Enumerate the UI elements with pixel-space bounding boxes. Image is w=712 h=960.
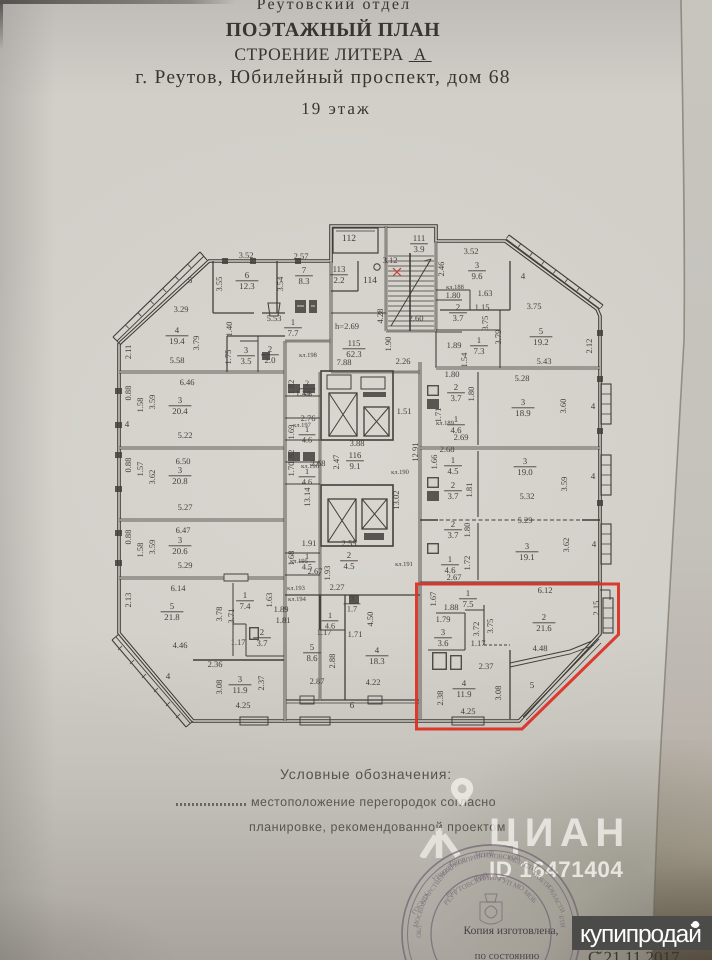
svg-text:3.78: 3.78	[214, 607, 224, 622]
svg-text:1.68: 1.68	[286, 551, 296, 566]
svg-text:1.80: 1.80	[462, 523, 472, 538]
svg-text:1: 1	[305, 467, 309, 476]
svg-text:h=2.69: h=2.69	[335, 321, 359, 331]
svg-text:5.29: 5.29	[518, 515, 533, 525]
svg-text:2: 2	[454, 382, 458, 392]
svg-text:3: 3	[178, 535, 183, 545]
svg-text:3.7: 3.7	[448, 530, 460, 540]
svg-text:3.7: 3.7	[448, 491, 460, 501]
svg-text:8.6: 8.6	[307, 653, 319, 663]
svg-text:1.57: 1.57	[135, 462, 145, 477]
svg-text:3.79: 3.79	[191, 336, 201, 351]
svg-text:2.15: 2.15	[591, 601, 601, 616]
svg-text:20.8: 20.8	[172, 476, 188, 486]
svg-text:1: 1	[451, 455, 455, 465]
svg-text:3.59: 3.59	[559, 477, 569, 492]
svg-text:3: 3	[244, 345, 249, 355]
svg-text:2.13: 2.13	[123, 593, 133, 608]
svg-text:1.17: 1.17	[471, 638, 486, 648]
svg-text:3.08: 3.08	[214, 680, 224, 695]
svg-text:7: 7	[302, 265, 307, 275]
svg-text:12.3: 12.3	[239, 281, 255, 291]
svg-text:3.12: 3.12	[383, 255, 398, 265]
svg-text:7.3: 7.3	[474, 346, 486, 356]
svg-text:1.81: 1.81	[276, 615, 291, 625]
svg-text:18.3: 18.3	[369, 656, 385, 666]
svg-text:2.68: 2.68	[440, 444, 455, 454]
svg-text:3.60: 3.60	[558, 399, 568, 414]
svg-text:113: 113	[333, 264, 346, 274]
svg-text:3: 3	[178, 465, 183, 475]
svg-text:1.54: 1.54	[459, 352, 469, 368]
svg-text:2: 2	[451, 519, 455, 529]
svg-text:3.8: 3.8	[302, 390, 312, 399]
svg-text:2.57: 2.57	[294, 251, 309, 261]
svg-text:4.5: 4.5	[344, 561, 356, 571]
svg-text:2.36: 2.36	[208, 659, 223, 669]
svg-text:2.37: 2.37	[479, 661, 494, 671]
svg-text:3: 3	[475, 260, 480, 270]
svg-text:2.12: 2.12	[584, 339, 594, 354]
svg-text:5.27: 5.27	[178, 502, 193, 512]
svg-text:3.52: 3.52	[239, 250, 254, 260]
svg-text:3: 3	[350, 594, 354, 603]
svg-text:6.46: 6.46	[180, 377, 195, 387]
svg-text:3: 3	[178, 395, 183, 405]
svg-text:18.9: 18.9	[515, 408, 531, 418]
svg-text:2: 2	[542, 612, 546, 622]
svg-text:5: 5	[530, 680, 535, 690]
svg-text:3.79: 3.79	[493, 330, 503, 345]
svg-text:1.63: 1.63	[478, 288, 493, 298]
svg-text:1.89: 1.89	[447, 340, 462, 350]
svg-text:4.46: 4.46	[173, 640, 188, 650]
svg-text:2.68: 2.68	[311, 458, 326, 468]
svg-text:1.17: 1.17	[231, 637, 246, 647]
svg-text:11.9: 11.9	[232, 685, 248, 695]
svg-text:19.4: 19.4	[169, 336, 185, 346]
svg-text:1.58: 1.58	[135, 398, 145, 413]
svg-text:6.12: 6.12	[538, 585, 553, 595]
svg-text:9.6: 9.6	[472, 271, 484, 281]
svg-text:4: 4	[375, 645, 380, 655]
svg-text:1.7: 1.7	[347, 605, 357, 614]
svg-text:3.59: 3.59	[147, 395, 157, 410]
svg-text:кл.190: кл.190	[391, 469, 409, 476]
svg-text:4: 4	[592, 539, 597, 549]
svg-text:2.88: 2.88	[327, 654, 337, 669]
svg-text:1.51: 1.51	[397, 406, 412, 416]
svg-text:13.14: 13.14	[302, 487, 312, 507]
svg-text:5.53: 5.53	[267, 313, 282, 323]
svg-text:116: 116	[349, 450, 362, 460]
svg-text:3.5: 3.5	[241, 356, 253, 366]
svg-text:3.75: 3.75	[480, 316, 490, 331]
svg-text:2: 2	[260, 627, 264, 637]
svg-text:1.90: 1.90	[383, 337, 393, 352]
svg-text:3.7: 3.7	[257, 638, 269, 648]
svg-text:3.88: 3.88	[350, 438, 365, 448]
svg-text:кл.191: кл.191	[395, 561, 413, 568]
svg-text:2.55: 2.55	[342, 538, 357, 548]
svg-text:4.48: 4.48	[533, 643, 548, 653]
svg-text:3.54: 3.54	[275, 276, 285, 292]
svg-text:кл.198: кл.198	[299, 352, 317, 359]
svg-text:ОБЛАСТИ: ОБЛАСТИ	[507, 855, 538, 874]
svg-text:2.2: 2.2	[334, 275, 345, 285]
svg-text:12.91: 12.91	[410, 442, 420, 461]
svg-text:1.88: 1.88	[444, 602, 459, 612]
svg-text:0.88: 0.88	[123, 530, 133, 545]
svg-text:3.72: 3.72	[471, 622, 481, 637]
svg-text:3: 3	[441, 627, 446, 637]
svg-text:0.88: 0.88	[123, 386, 133, 401]
svg-text:13.02: 13.02	[391, 490, 401, 509]
svg-text:7.7: 7.7	[288, 328, 300, 338]
svg-text:3: 3	[523, 456, 528, 466]
svg-text:4.25: 4.25	[461, 706, 476, 716]
svg-text:3.7: 3.7	[453, 313, 465, 323]
svg-text:5: 5	[310, 642, 315, 652]
svg-text:2: 2	[456, 302, 460, 312]
svg-text:3: 3	[238, 674, 243, 684]
svg-text:4: 4	[125, 419, 130, 429]
svg-text:4.6: 4.6	[325, 622, 335, 631]
svg-text:2.67: 2.67	[447, 572, 462, 582]
svg-text:1: 1	[243, 590, 247, 600]
svg-text:2: 2	[347, 550, 351, 560]
svg-text:4: 4	[166, 671, 171, 681]
svg-text:19.1: 19.1	[519, 552, 534, 562]
svg-text:4: 4	[175, 325, 180, 335]
svg-text:3.55: 3.55	[214, 277, 224, 292]
svg-text:4.6: 4.6	[302, 478, 312, 487]
svg-text:2.87: 2.87	[310, 676, 325, 686]
svg-text:1.71: 1.71	[348, 629, 363, 639]
svg-text:2: 2	[451, 480, 455, 490]
svg-text:4: 4	[521, 271, 526, 281]
svg-text:112: 112	[342, 234, 356, 244]
svg-text:2.26: 2.26	[396, 356, 411, 366]
svg-text:20.4: 20.4	[172, 406, 188, 416]
svg-text:1.66: 1.66	[429, 455, 439, 470]
svg-text:6: 6	[245, 270, 250, 280]
svg-text:19.2: 19.2	[533, 337, 548, 347]
svg-text:1: 1	[328, 611, 332, 620]
svg-text:115: 115	[348, 338, 361, 348]
svg-text:1.80: 1.80	[445, 369, 460, 379]
svg-text:кл.194: кл.194	[288, 596, 307, 603]
svg-text:111: 111	[413, 233, 426, 243]
svg-text:1.58: 1.58	[135, 543, 145, 558]
svg-text:3.08: 3.08	[493, 686, 503, 701]
svg-text:3.71: 3.71	[226, 609, 236, 624]
svg-text:3.9: 3.9	[414, 244, 426, 254]
svg-text:21.6: 21.6	[536, 623, 552, 633]
svg-text:1.80: 1.80	[446, 290, 461, 300]
svg-text:7.5: 7.5	[463, 599, 475, 609]
svg-text:1.63: 1.63	[264, 593, 274, 608]
svg-text:1: 1	[448, 554, 452, 564]
svg-text:1: 1	[454, 414, 458, 424]
svg-text:7.88: 7.88	[337, 357, 352, 367]
svg-text:1.80: 1.80	[466, 387, 476, 402]
svg-text:2.46: 2.46	[436, 262, 446, 277]
svg-text:2.38: 2.38	[435, 691, 445, 706]
svg-text:5.43: 5.43	[537, 356, 552, 366]
svg-text:5: 5	[188, 275, 193, 285]
svg-text:1.71: 1.71	[433, 408, 443, 423]
svg-text:5.32: 5.32	[520, 491, 535, 501]
svg-text:1: 1	[466, 588, 470, 598]
svg-text:1: 1	[305, 425, 309, 434]
svg-text:2.11: 2.11	[123, 345, 133, 360]
svg-text:3.29: 3.29	[174, 304, 189, 314]
svg-text:2.67: 2.67	[308, 566, 323, 576]
svg-text:1: 1	[305, 552, 309, 561]
svg-text:0.88: 0.88	[123, 458, 133, 473]
svg-text:1.79: 1.79	[436, 614, 451, 624]
svg-text:4.5: 4.5	[448, 466, 460, 476]
svg-text:2.0: 2.0	[265, 355, 277, 365]
svg-text:3.52: 3.52	[464, 246, 479, 256]
svg-text:9.1: 9.1	[350, 461, 361, 471]
svg-text:1.40: 1.40	[224, 322, 234, 337]
svg-text:2.60: 2.60	[409, 313, 424, 323]
svg-text:1.69: 1.69	[286, 425, 296, 440]
svg-text:1.82: 1.82	[286, 450, 296, 465]
svg-text:5.28: 5.28	[515, 373, 530, 383]
svg-text:3.59: 3.59	[147, 540, 157, 555]
svg-text:2: 2	[268, 344, 272, 354]
svg-text:1.72: 1.72	[462, 556, 472, 571]
svg-text:ОБЛ: ОБЛ	[416, 924, 423, 938]
svg-text:3.75: 3.75	[527, 301, 542, 311]
svg-text:3.75: 3.75	[485, 619, 495, 634]
svg-text:6: 6	[350, 700, 355, 710]
svg-text:1.67: 1.67	[428, 592, 438, 607]
svg-text:11.9: 11.9	[456, 689, 472, 699]
svg-text:1.75: 1.75	[223, 350, 233, 365]
svg-text:1.93: 1.93	[322, 566, 332, 581]
svg-text:5: 5	[170, 601, 175, 611]
svg-text:5.58: 5.58	[170, 355, 185, 365]
svg-text:2.37: 2.37	[256, 676, 266, 691]
svg-text:ОБЛАСТИ: ОБЛАСТИ	[546, 885, 566, 915]
svg-text:5.22: 5.22	[178, 430, 193, 440]
svg-text:кл.193: кл.193	[287, 585, 305, 592]
svg-text:19.0: 19.0	[517, 467, 533, 477]
svg-text:7.4: 7.4	[240, 601, 252, 611]
svg-text:5: 5	[539, 326, 544, 336]
svg-text:4.50: 4.50	[365, 612, 375, 627]
svg-text:4.6: 4.6	[302, 436, 312, 445]
svg-text:1.81: 1.81	[464, 483, 474, 498]
svg-text:3.62: 3.62	[561, 538, 571, 553]
svg-text:1: 1	[477, 335, 481, 345]
svg-text:3.62: 3.62	[147, 470, 157, 485]
svg-text:1.89: 1.89	[274, 604, 289, 614]
svg-text:2.27: 2.27	[330, 582, 345, 592]
svg-text:4: 4	[591, 401, 596, 411]
svg-text:МОБ: МОБ	[522, 888, 538, 905]
svg-text:1.82: 1.82	[286, 380, 296, 395]
svg-text:4.25: 4.25	[236, 700, 251, 710]
svg-text:114: 114	[363, 276, 377, 286]
svg-text:3.6: 3.6	[438, 638, 450, 648]
svg-text:3.7: 3.7	[451, 393, 463, 403]
svg-text:21.8: 21.8	[164, 612, 180, 622]
svg-text:2.69: 2.69	[454, 432, 469, 442]
svg-text:6.14: 6.14	[171, 583, 187, 593]
svg-text:1.15: 1.15	[475, 302, 490, 312]
svg-text:2: 2	[305, 379, 309, 388]
svg-text:3: 3	[525, 541, 530, 551]
svg-text:6.47: 6.47	[176, 525, 191, 535]
svg-text:1: 1	[291, 317, 295, 327]
svg-text:8.3: 8.3	[299, 276, 311, 286]
svg-text:2.76: 2.76	[301, 413, 316, 423]
svg-text:1.91: 1.91	[302, 538, 317, 548]
svg-text:4: 4	[462, 678, 467, 688]
svg-text:5.29: 5.29	[178, 560, 193, 570]
svg-text:4: 4	[591, 471, 596, 481]
svg-text:20.6: 20.6	[172, 546, 188, 556]
svg-text:3: 3	[521, 397, 526, 407]
svg-text:4.22: 4.22	[366, 677, 381, 687]
svg-text:2.47: 2.47	[331, 455, 341, 470]
svg-text:4.28: 4.28	[375, 309, 385, 324]
